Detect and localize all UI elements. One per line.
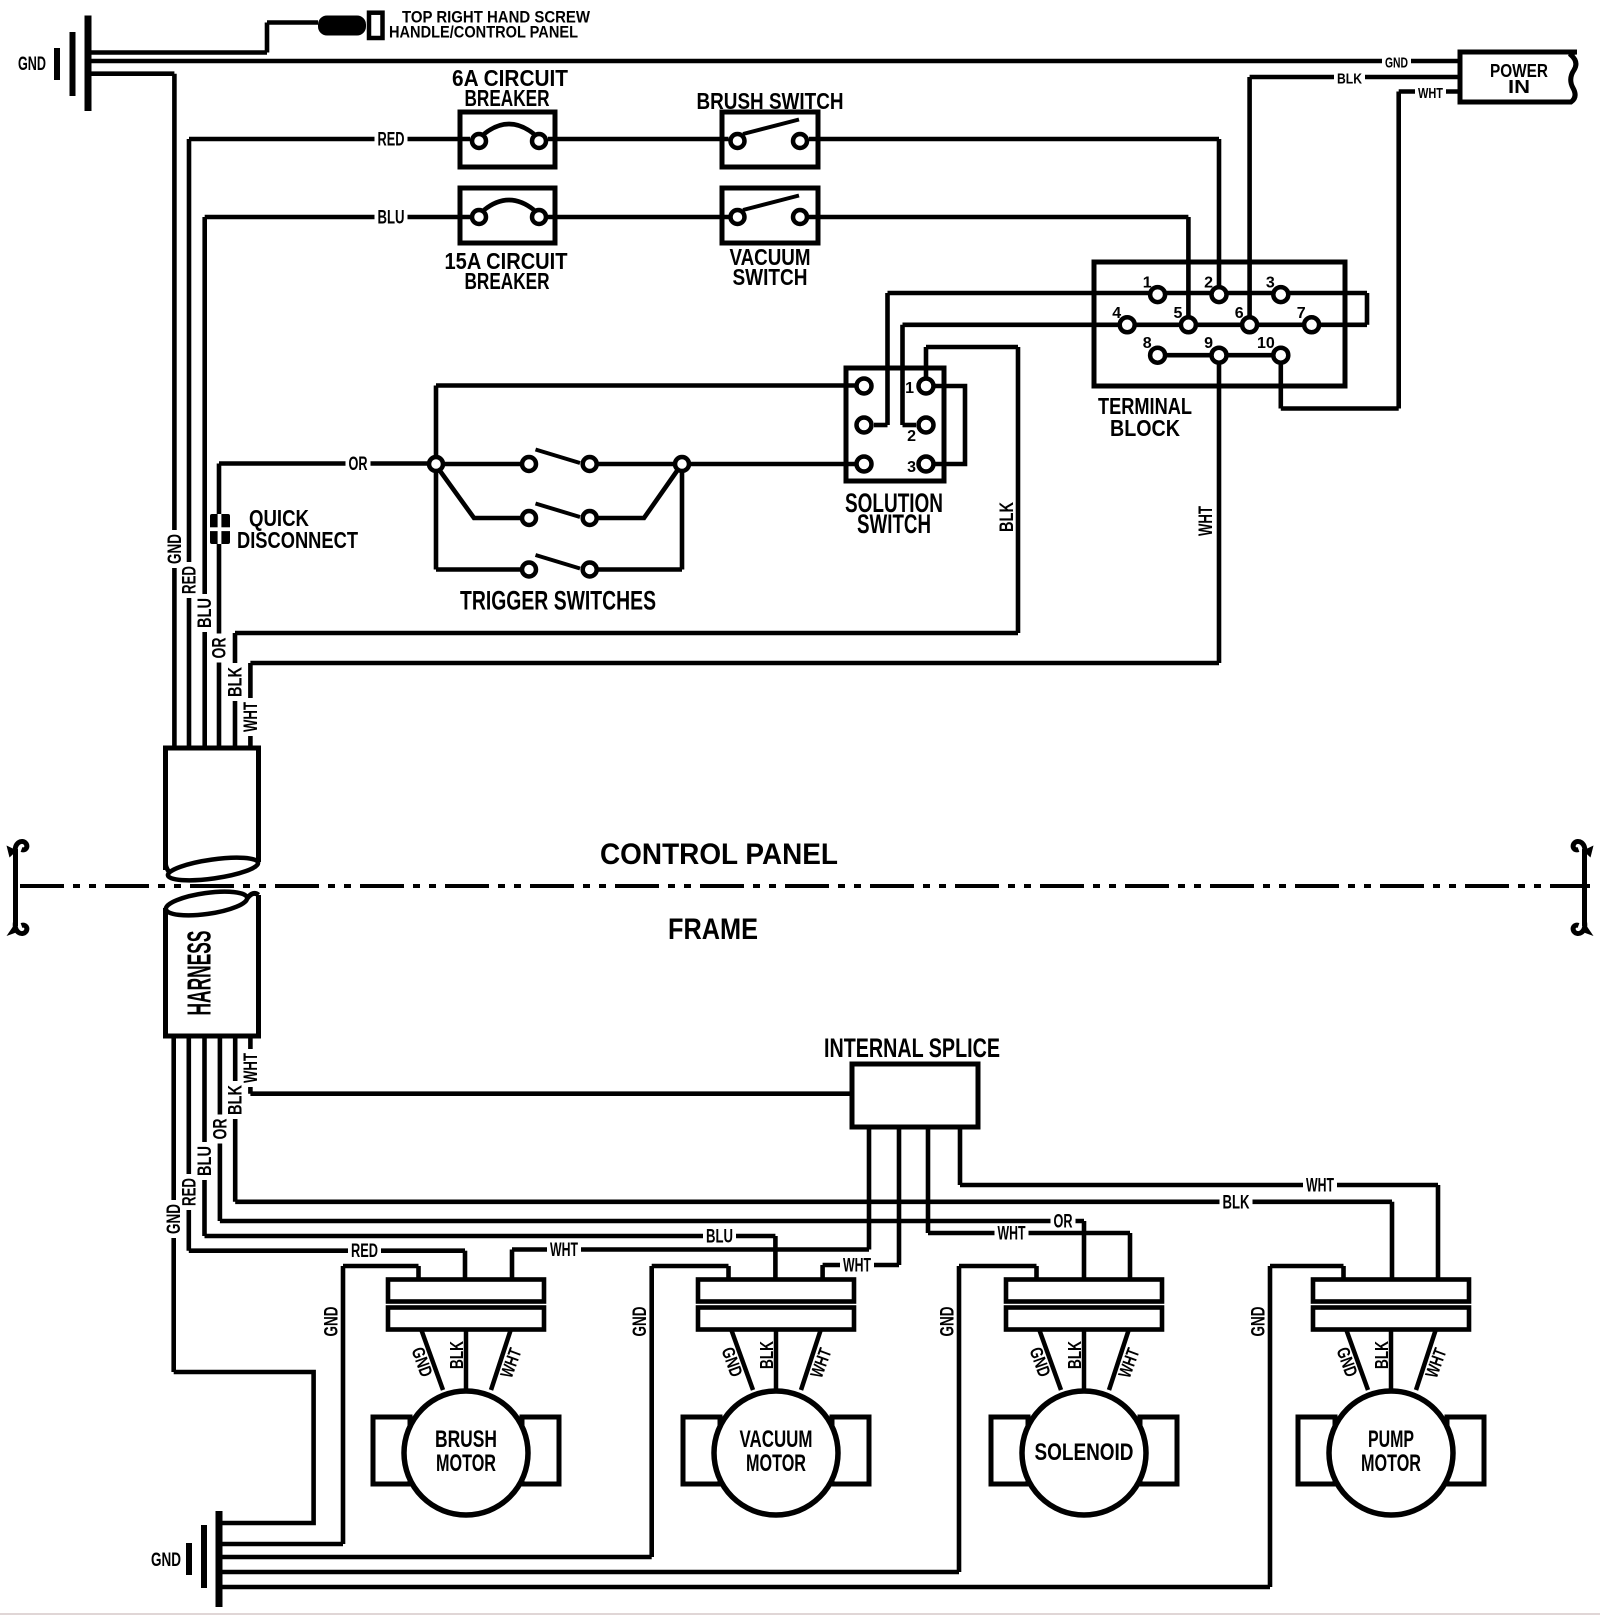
svg-text:BRUSH: BRUSH <box>435 1426 497 1453</box>
svg-text:GND: GND <box>164 1204 185 1234</box>
svg-text:HARNESS: HARNESS <box>181 931 218 1016</box>
svg-text:GND: GND <box>322 1307 343 1337</box>
svg-text:BREAKER: BREAKER <box>465 85 550 111</box>
svg-text:8: 8 <box>1143 335 1152 352</box>
svg-text:BLK: BLK <box>757 1341 777 1369</box>
svg-text:3: 3 <box>1266 275 1275 292</box>
svg-text:OR: OR <box>1054 1212 1073 1233</box>
svg-text:GND: GND <box>938 1307 959 1337</box>
svg-text:BLK: BLK <box>1372 1341 1392 1369</box>
svg-text:RED: RED <box>180 566 201 594</box>
svg-text:BLU: BLU <box>378 208 405 229</box>
svg-text:7: 7 <box>1297 305 1306 322</box>
svg-text:FRAME: FRAME <box>668 913 758 946</box>
svg-text:SWITCH: SWITCH <box>733 264 808 290</box>
svg-text:DISCONNECT: DISCONNECT <box>237 527 358 553</box>
svg-text:BLOCK: BLOCK <box>1110 415 1180 441</box>
svg-text:BREAKER: BREAKER <box>465 268 550 294</box>
svg-text:10: 10 <box>1257 335 1275 352</box>
svg-text:WHT: WHT <box>550 1240 578 1261</box>
svg-text:BLK: BLK <box>447 1341 467 1369</box>
svg-text:MOTOR: MOTOR <box>436 1450 496 1477</box>
svg-text:BLU: BLU <box>706 1227 733 1248</box>
svg-text:2: 2 <box>1204 275 1213 292</box>
svg-text:RED: RED <box>351 1241 378 1262</box>
svg-text:WHT: WHT <box>241 1053 262 1083</box>
svg-text:4: 4 <box>1112 305 1121 322</box>
svg-text:6: 6 <box>1235 305 1244 322</box>
svg-text:BLK: BLK <box>997 502 1018 532</box>
svg-text:HANDLE/CONTROL PANEL: HANDLE/CONTROL PANEL <box>389 23 578 42</box>
svg-text:2: 2 <box>907 428 916 445</box>
svg-text:WHT: WHT <box>843 1256 871 1277</box>
svg-text:3: 3 <box>907 459 916 476</box>
svg-text:WHT: WHT <box>241 702 262 732</box>
svg-text:GND: GND <box>151 1550 181 1571</box>
svg-text:WHT: WHT <box>998 1224 1026 1245</box>
svg-text:WHT: WHT <box>1196 506 1217 536</box>
svg-text:1: 1 <box>905 380 914 397</box>
svg-text:VACUUM: VACUUM <box>740 1426 813 1453</box>
svg-text:GND: GND <box>630 1307 651 1337</box>
svg-text:MOTOR: MOTOR <box>746 1450 806 1477</box>
svg-text:SWITCH: SWITCH <box>857 509 931 539</box>
svg-text:TRIGGER SWITCHES: TRIGGER SWITCHES <box>460 586 656 616</box>
svg-text:GND: GND <box>165 534 186 564</box>
svg-text:MOTOR: MOTOR <box>1361 1450 1421 1477</box>
svg-text:GND: GND <box>1249 1307 1270 1337</box>
svg-text:GND: GND <box>18 54 46 75</box>
svg-text:BLK: BLK <box>226 667 247 697</box>
svg-text:BLU: BLU <box>195 1146 216 1176</box>
svg-text:OR: OR <box>210 1118 231 1139</box>
svg-text:OR: OR <box>210 637 231 658</box>
svg-text:WHT: WHT <box>1418 85 1443 102</box>
svg-text:WHT: WHT <box>1306 1176 1334 1197</box>
svg-text:1: 1 <box>1143 275 1152 292</box>
svg-text:9: 9 <box>1204 335 1213 352</box>
svg-text:CONTROL PANEL: CONTROL PANEL <box>600 838 838 871</box>
svg-text:GND: GND <box>1385 55 1408 72</box>
svg-text:IN: IN <box>1508 77 1530 97</box>
svg-text:BLU: BLU <box>195 598 216 628</box>
svg-text:BLK: BLK <box>226 1085 247 1115</box>
svg-text:BLK: BLK <box>1223 1192 1250 1213</box>
svg-text:INTERNAL SPLICE: INTERNAL SPLICE <box>824 1033 1000 1063</box>
svg-text:SOLENOID: SOLENOID <box>1035 1439 1134 1466</box>
svg-text:OR: OR <box>349 454 368 475</box>
svg-text:BLK: BLK <box>1065 1341 1085 1369</box>
svg-text:BLK: BLK <box>1337 71 1362 88</box>
svg-text:PUMP: PUMP <box>1368 1426 1414 1453</box>
svg-text:5: 5 <box>1173 305 1182 322</box>
svg-text:RED: RED <box>179 1178 200 1206</box>
svg-text:RED: RED <box>378 130 405 151</box>
